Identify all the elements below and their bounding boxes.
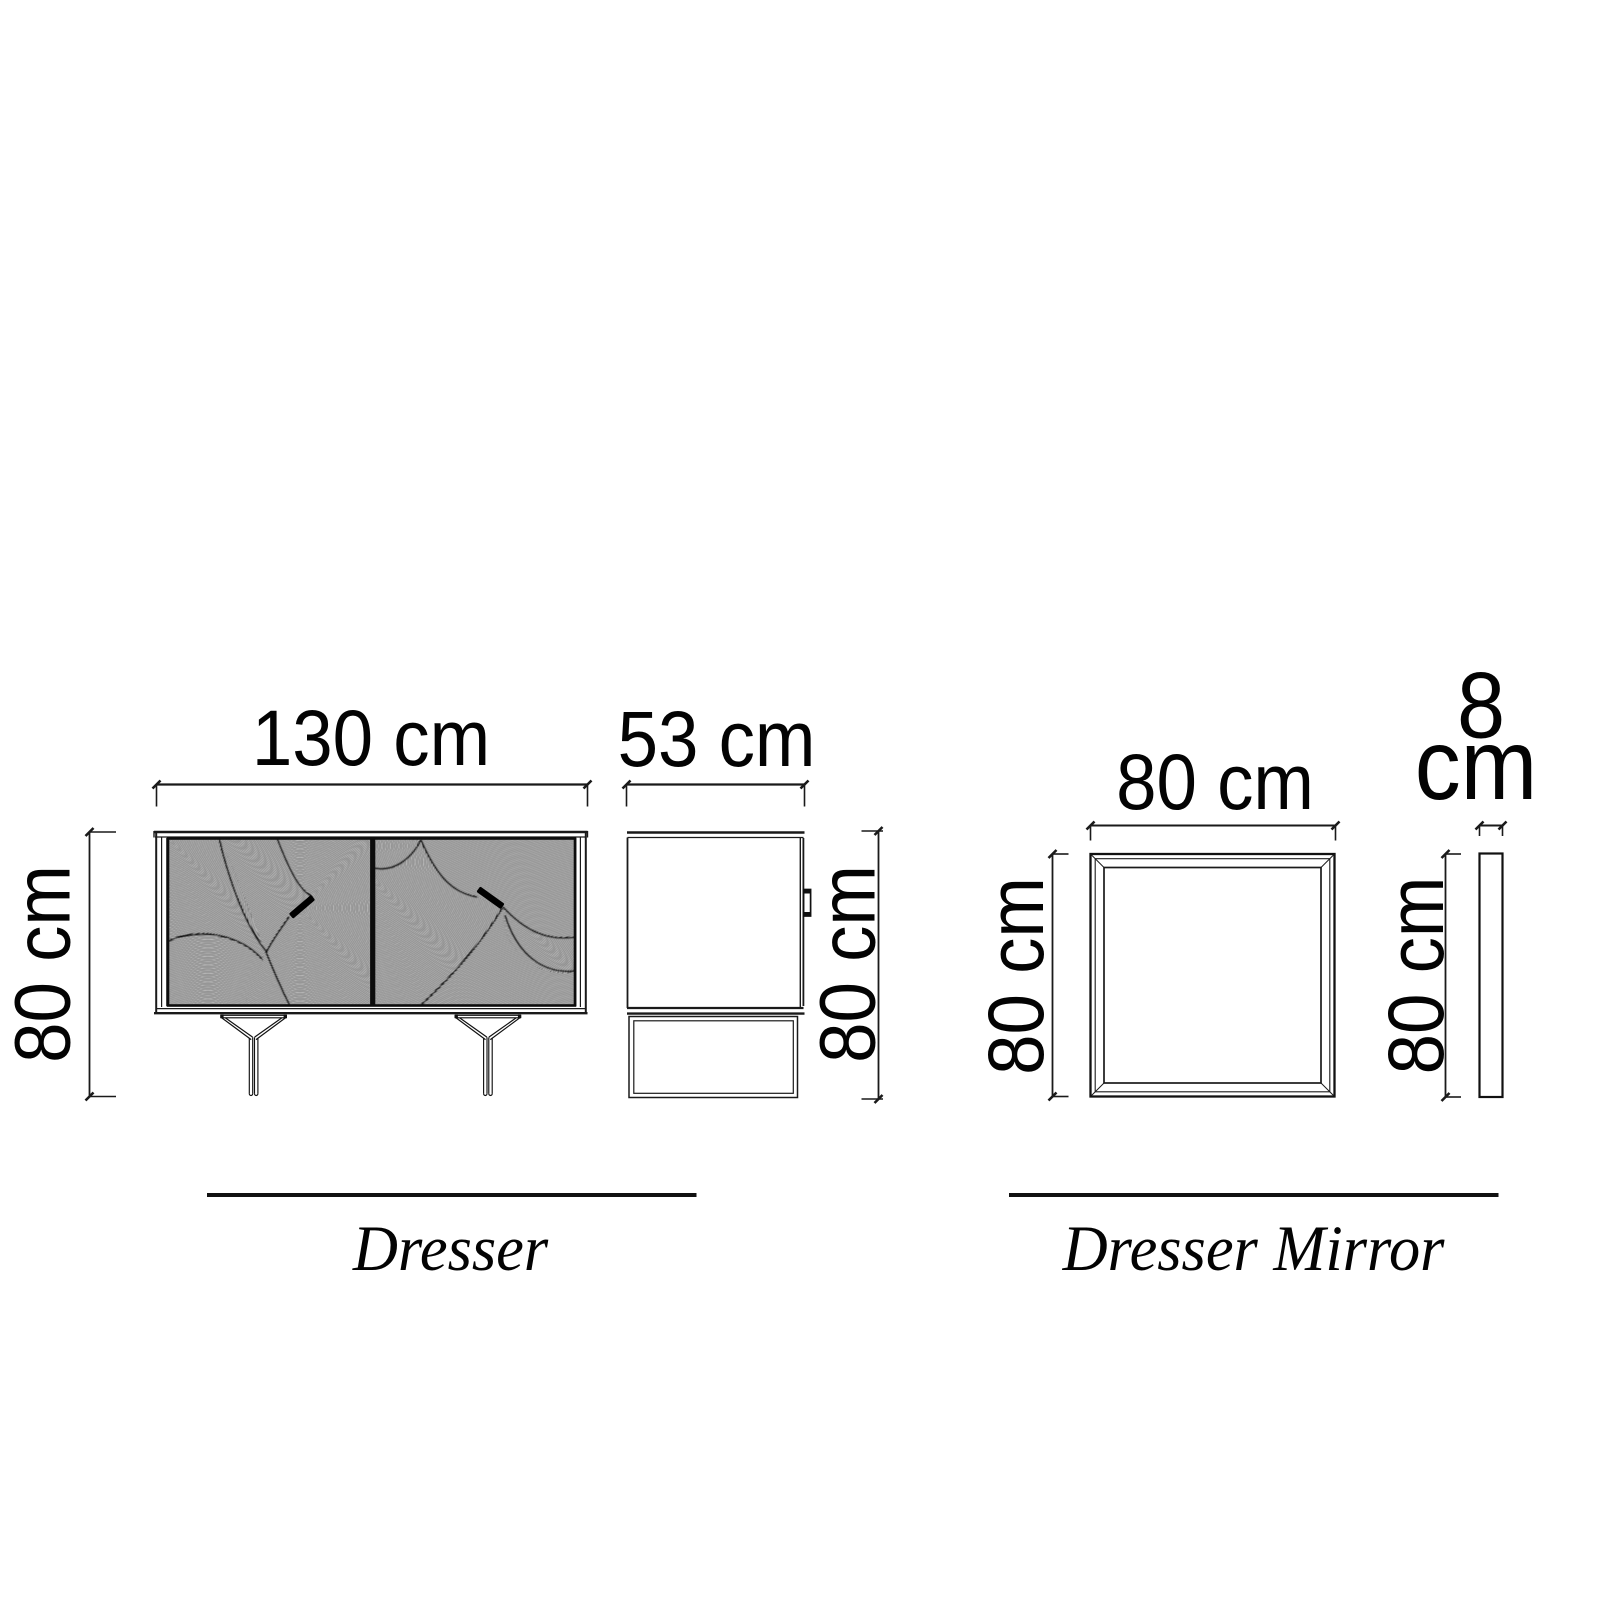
svg-text:cm: cm: [1415, 709, 1538, 820]
svg-text:80 cm: 80 cm: [1372, 877, 1460, 1075]
svg-text:53 cm: 53 cm: [618, 695, 816, 783]
svg-text:130 cm: 130 cm: [252, 694, 490, 782]
svg-text:Dresser: Dresser: [352, 1212, 548, 1284]
svg-text:Dresser Mirror: Dresser Mirror: [1062, 1212, 1445, 1284]
svg-text:80 cm: 80 cm: [972, 877, 1060, 1075]
svg-text:80 cm: 80 cm: [0, 865, 87, 1063]
svg-text:80 cm: 80 cm: [1116, 738, 1314, 826]
